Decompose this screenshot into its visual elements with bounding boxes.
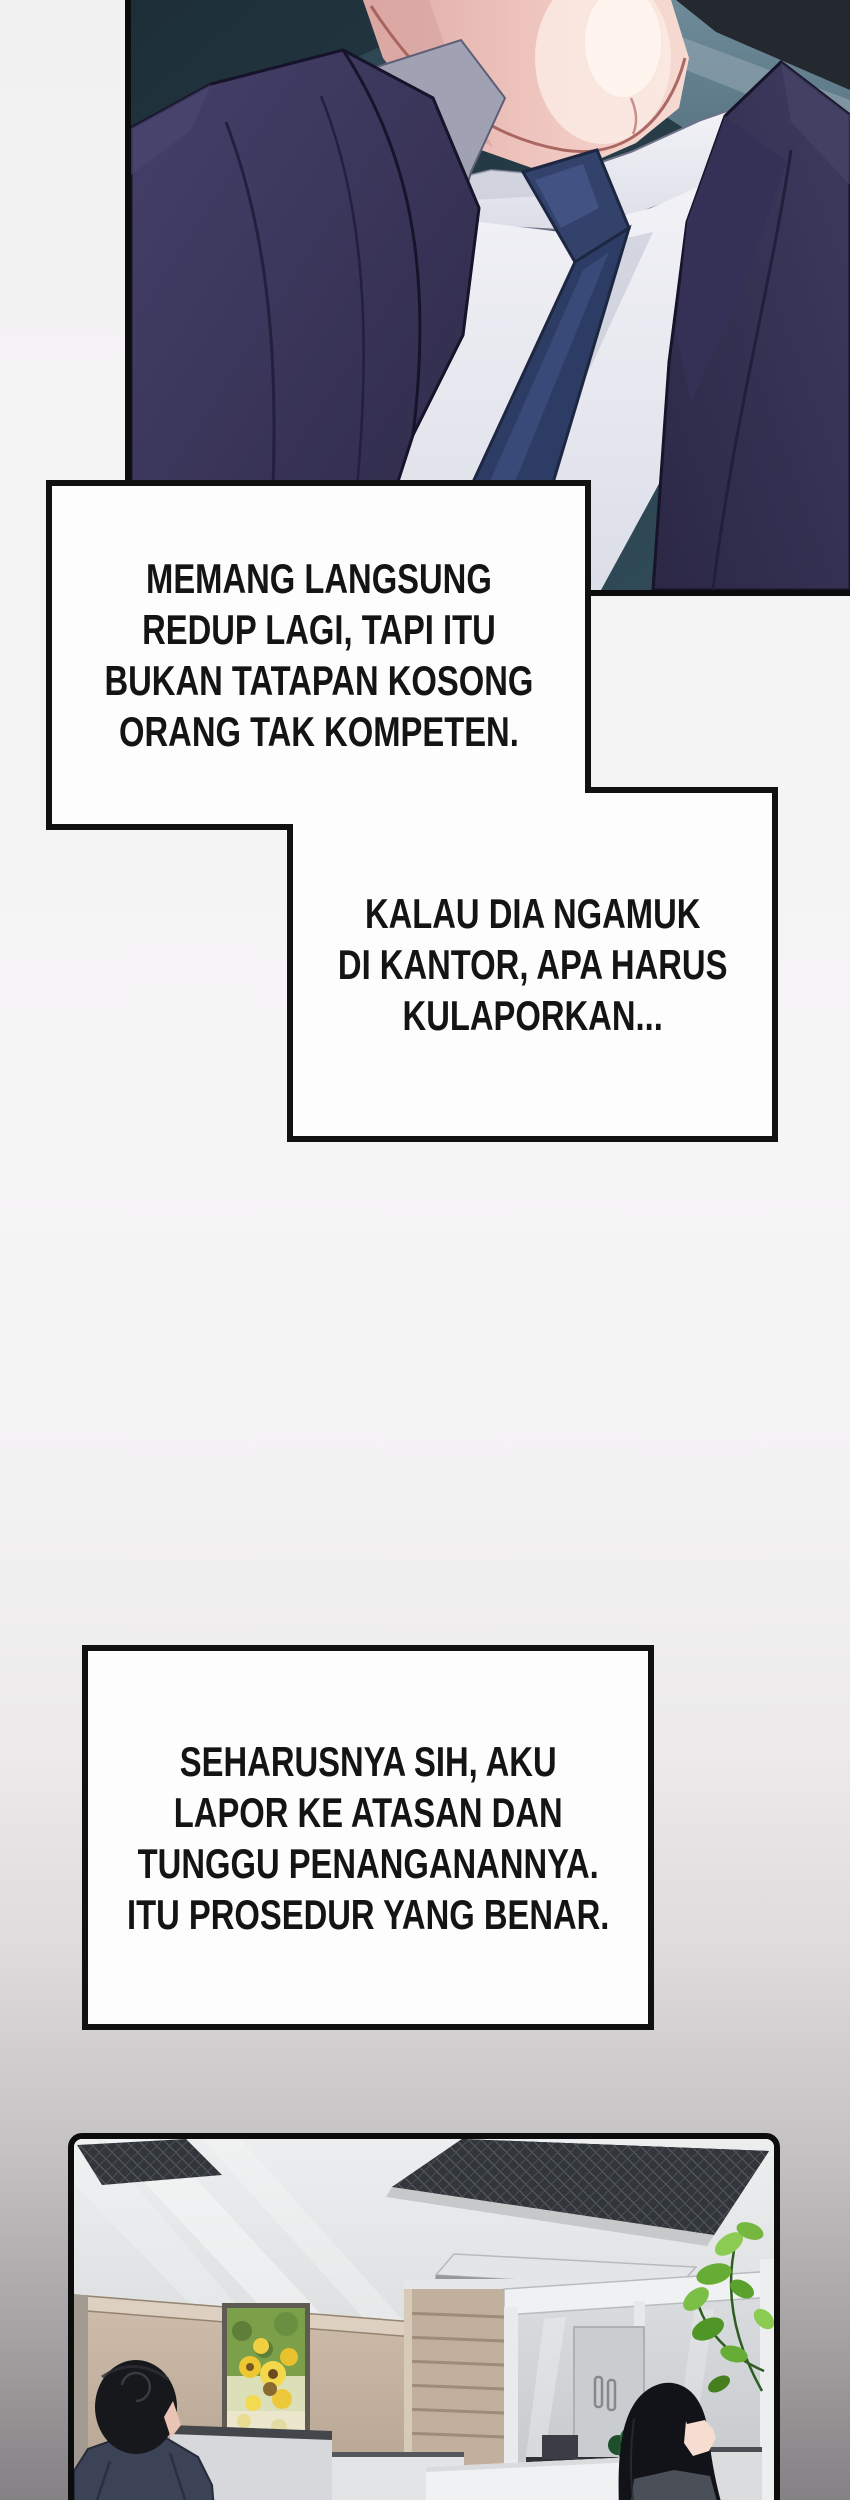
interior-monitor: [542, 2435, 578, 2459]
speech-line: KALAU DIA NGAMUK: [338, 888, 728, 939]
speech-box-1-text: MEMANG LANGSUNG REDUP LAGI, TAPI ITU BUK…: [104, 553, 533, 757]
speech-box-3-text: SEHARUSNYA SIH, AKU LAPOR KE ATASAN DAN …: [127, 1736, 609, 1940]
speech-box-2-text: KALAU DIA NGAMUK DI KANTOR, APA HARUS KU…: [338, 888, 728, 1041]
speech-box-2: KALAU DIA NGAMUK DI KANTOR, APA HARUS KU…: [287, 787, 778, 1142]
speech-line: ITU PROSEDUR YANG BENAR.: [127, 1889, 609, 1940]
office-panel: [68, 2133, 780, 2500]
speech-line: KULAPORKAN...: [338, 990, 728, 1041]
comic-page: KALAU DIA NGAMUK DI KANTOR, APA HARUS KU…: [0, 0, 850, 2500]
speech-line: SEHARUSNYA SIH, AKU: [127, 1736, 609, 1787]
speech-line: MEMANG LANGSUNG: [104, 553, 533, 604]
speech-line: TUNGGU PENANGANANNYA.: [127, 1838, 609, 1889]
speech-box-3: SEHARUSNYA SIH, AKU LAPOR KE ATASAN DAN …: [82, 1645, 654, 2030]
speech-line: REDUP LAGI, TAPI ITU: [104, 604, 533, 655]
speech-line: DI KANTOR, APA HARUS: [338, 939, 728, 990]
speech-line: ORANG TAK KOMPETEN.: [104, 706, 533, 757]
merged-border-patch: [584, 793, 598, 830]
speech-line: LAPOR KE ATASAN DAN: [127, 1787, 609, 1838]
merged-border-patch: [293, 823, 585, 837]
office-scene-illustration: [74, 2139, 774, 2500]
speech-line: BUKAN TATAPAN KOSONG: [104, 655, 533, 706]
speech-box-1: MEMANG LANGSUNG REDUP LAGI, TAPI ITU BUK…: [46, 480, 591, 830]
